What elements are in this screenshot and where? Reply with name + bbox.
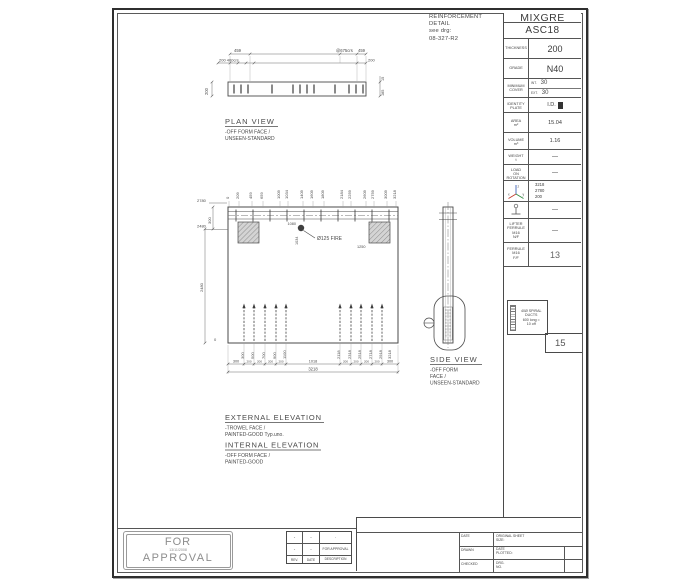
axis-x-letter: x <box>508 193 510 197</box>
asc-code: ASC18 <box>504 23 581 38</box>
bar-dim: 1100 <box>282 350 287 359</box>
tb-divider <box>459 532 460 572</box>
seg-dim: 200 <box>278 360 283 364</box>
volume-value: 1.16 <box>529 133 581 149</box>
identity-value: I.D. <box>547 102 556 108</box>
fire-leader <box>304 231 316 239</box>
left-dim-2480b: 2480 <box>199 282 204 292</box>
info-row-load: LOAD ON ROTATION — <box>504 165 581 181</box>
note-line2: DETAIL <box>429 21 482 28</box>
mix-title: MIXGRE <box>504 13 581 22</box>
bar-dim-end: 3218 <box>387 349 392 359</box>
duct-note-line4: 10 off <box>516 322 548 326</box>
drawing-area: 459 @675crs 459 200 400crs 200 200 15 18… <box>0 0 700 584</box>
side-view: SIDE VIEW -OFF FORM FACE / UNSEEN-STANDA… <box>424 202 482 387</box>
seg-dim: 300 <box>233 360 239 364</box>
drawing-sheet: 459 @675crs 459 200 400crs 200 200 15 18… <box>0 0 700 584</box>
revision-header-row: REV. DATE DESCRIPTION <box>287 556 351 563</box>
rev-cell: - <box>287 532 303 543</box>
note-line3: see drg: <box>429 28 482 35</box>
plan-view-title: PLAN VIEW <box>225 117 275 126</box>
cover-ext-label: EXT. <box>531 91 538 95</box>
bar-dim: 2718 <box>368 349 373 359</box>
axis-y-letter: y <box>523 193 525 197</box>
info-row-grade: GRADE N40 <box>504 59 581 79</box>
plan-view: 459 @675crs 459 200 400crs 200 200 15 18… <box>204 48 385 142</box>
ferrule-ff-value: 13 <box>529 243 581 266</box>
identity-plate-icon <box>558 102 563 109</box>
seg-dim: 200 <box>343 360 348 364</box>
seg-dim: 200 <box>374 360 379 364</box>
info-row-mix: MIXGRE <box>504 13 581 23</box>
revision-table: - - - - - FOR APPROVAL REV. DATE DESCRIP… <box>286 531 352 564</box>
side-view-title: SIDE VIEW <box>430 355 478 364</box>
identity-label-2: PLATE <box>504 106 528 110</box>
rev-cell: - <box>320 532 351 543</box>
top-dim: 1034 <box>284 189 289 199</box>
plan-sub1: -OFF FORM FACE / <box>225 130 271 136</box>
thickness-value: 200 <box>529 39 581 58</box>
top-dim: 1009 <box>276 189 281 199</box>
rev-header: DATE <box>303 556 320 563</box>
info-row-axis: z x y 3218 2780 200 <box>504 181 581 202</box>
bar-dim: 2518 <box>357 349 362 359</box>
cover-label-2: COVER <box>504 88 528 92</box>
side-sub1: -OFF FORM <box>430 368 458 374</box>
rev-header: DESCRIPTION <box>320 556 351 563</box>
lifter-icon <box>507 203 525 218</box>
plan-dim-15: 15 <box>381 77 385 81</box>
info-row-ferrule-ff: FERRULE M16 F/F 13 <box>504 243 581 267</box>
external-elevation-title: EXTERNAL ELEVATION <box>225 413 322 422</box>
duct-count-value: 15 <box>555 338 566 349</box>
dowel-arrows <box>242 304 383 309</box>
tb-date-label: DATE <box>461 534 470 538</box>
plan-extension-lines <box>230 56 366 81</box>
elevation-view: Ø125 FIRE 1080 1034 1250 0 209 459 659 1… <box>197 189 399 374</box>
plan-dim-459-right: 459 <box>358 48 366 53</box>
info-table: MIXGRE ASC18 THICKNESS 200 GRADE N40 MIN… <box>503 13 581 517</box>
seg-dim: 200 <box>257 360 262 364</box>
fire-dim-x: 1080 <box>288 222 296 226</box>
spiral-duct-note: 40Ø SPIRAL DUCTS 600 long = 10 off <box>507 300 548 335</box>
fire-dim-y: 1034 <box>295 237 299 245</box>
bar-dim: 900 <box>272 352 277 359</box>
seg-dim: 200 <box>246 360 251 364</box>
ferrule-nf-value: — <box>529 219 581 242</box>
top-dim: 209 <box>235 192 240 199</box>
top-dim: 2184 <box>339 189 344 199</box>
bar-dim: 300 <box>240 352 245 359</box>
note-line4: 08-327-R2 <box>429 36 482 43</box>
axis-triad-icon: z x y <box>505 182 527 200</box>
duct-count-cell: 15 <box>545 333 582 353</box>
blockout-left <box>238 222 259 243</box>
rev-cell: FOR APPROVAL <box>320 544 351 555</box>
info-row-lifter: — <box>504 202 581 219</box>
info-row-weight: WEIGHT t — <box>504 150 581 165</box>
area-value: 15.04 <box>529 113 581 132</box>
cover-int-value: 30 <box>541 80 548 86</box>
tb-drawn-label: DRAWN <box>461 548 474 552</box>
top-dim: 3009 <box>383 189 388 199</box>
approval-stamp: FOR 13/11/2008 APPROVAL <box>123 531 233 570</box>
plan-dim-200-side: 200 <box>204 87 209 95</box>
fire-penetration <box>298 225 304 231</box>
top-dim: 2759 <box>370 189 375 199</box>
blockout-right <box>369 222 390 243</box>
seg-dim: 200 <box>353 360 358 364</box>
thickness-label: THICKNESS <box>504 39 529 58</box>
top-dim: 3218 <box>392 189 397 199</box>
left-dim-2480a: 2480 <box>197 224 207 229</box>
volume-label-2: m³ <box>504 142 528 146</box>
revision-row: - - - <box>287 532 351 544</box>
note-line1: REINFORCEMENT <box>429 14 482 21</box>
load-label-3: ROTATION <box>504 176 528 180</box>
bar-dim: 2318 <box>347 349 352 359</box>
grade-label: GRADE <box>504 59 529 78</box>
top-dim: 1409 <box>299 189 304 199</box>
top-dim: 2259 <box>347 189 352 199</box>
total-dim: 3218 <box>308 367 318 372</box>
axis-z-letter: z <box>518 185 520 189</box>
plan-sub2: UNSEEN-STANDARD <box>225 136 275 142</box>
rev-cell: - <box>303 544 320 555</box>
weight-label-2: t <box>504 158 528 162</box>
info-row-identity: IDENTITY PLATE I.D. <box>504 98 581 113</box>
seg-dim: 1018 <box>309 360 317 364</box>
rev-cell: - <box>303 532 320 543</box>
bottom-strip-line <box>117 528 356 529</box>
revision-row: - - FOR APPROVAL <box>287 544 351 556</box>
plan-dim-200-400crs: 200 400crs <box>219 58 239 63</box>
plan-dim-200-right: 200 <box>368 58 375 63</box>
info-row-volume: VOLUME m³ 1.16 <box>504 133 581 150</box>
external-sub1: -TROWEL FACE / <box>225 426 266 432</box>
fire-note: Ø125 FIRE <box>317 236 343 242</box>
top-dim: 1809 <box>320 189 325 199</box>
tb-drg-label-2: NO. <box>496 565 504 569</box>
ferrule-ff-label-3: F/F <box>504 256 528 260</box>
plan-dim-459-left: 459 <box>234 48 242 53</box>
grade-value: N40 <box>529 59 581 78</box>
rev-header: REV. <box>287 556 303 563</box>
dim-1250: 1250 <box>357 245 365 249</box>
tb-divider <box>357 532 582 533</box>
cover-int-label: INT. <box>531 81 537 85</box>
top-dim: 1609 <box>309 189 314 199</box>
cover-ext-value: 30 <box>542 90 549 96</box>
top-dim: 659 <box>259 192 264 199</box>
seg-dim: 200 <box>268 360 273 364</box>
lifter-value: — <box>529 202 581 218</box>
ferrule-nf-label-4: N/F <box>504 235 528 239</box>
top-dim: 459 <box>248 192 253 199</box>
bar-dim: 2118 <box>336 350 341 359</box>
stamp-line2: APPROVAL <box>143 553 214 564</box>
top-dim: 0 <box>225 196 230 199</box>
rev-cell: - <box>287 544 303 555</box>
axis-z-value: 200 <box>535 194 542 200</box>
seg-dim: 200 <box>364 360 369 364</box>
dowel-bars <box>244 308 382 341</box>
bar-dim: 500 <box>250 352 255 359</box>
info-row-asc: ASC18 <box>504 23 581 39</box>
tb-divider <box>564 546 565 573</box>
internal-sub1: -OFF FORM FACE / <box>225 453 271 459</box>
bar-dim: 700 <box>261 352 266 359</box>
reinforcement-note: REINFORCEMENT DETAIL see drg: 08-327-R2 <box>429 14 482 43</box>
internal-elevation-title: INTERNAL ELEVATION <box>225 441 319 450</box>
tb-divider <box>493 532 494 572</box>
side-sub3: UNSEEN-STANDARD <box>430 381 480 387</box>
info-row-cover: MINIMUM COVER INT. 30 EXT. 30 <box>504 79 581 98</box>
area-label-2: m² <box>504 123 528 127</box>
info-row-area: AREA m² 15.04 <box>504 113 581 133</box>
left-dim-2780: 2780 <box>197 198 207 203</box>
internal-sub2: PAINTED-GOOD <box>225 460 264 466</box>
plan-panel-outline <box>228 82 366 96</box>
tb-sheet-size-label-2: SIZE: <box>496 538 524 542</box>
bar-dim: 2918 <box>378 349 383 359</box>
top-dim: 2609 <box>362 189 367 199</box>
left-dim-0: 0 <box>214 337 217 342</box>
title-block: DATE DRAWN CHECKED ORIGINAL SHEET SIZE: … <box>356 517 581 571</box>
info-row-thickness: THICKNESS 200 <box>504 39 581 59</box>
load-value: — <box>529 165 581 180</box>
info-row-ferrule-nf: LIFTER FERRULE M16 N/F — <box>504 219 581 243</box>
tb-plotted-label-2: PLOTTED: <box>496 551 513 555</box>
external-sub2: PAINTED-GOOD Typ.uno. <box>225 432 284 438</box>
elevation-notes: EXTERNAL ELEVATION -TROWEL FACE / PAINTE… <box>225 413 324 466</box>
plan-dim-675crs: @675crs <box>336 48 353 53</box>
seg-dim: 300 <box>387 360 393 364</box>
tb-checked-label: CHECKED <box>461 562 478 566</box>
side-sub2: FACE / <box>430 374 446 380</box>
stamp-line1: FOR <box>165 537 191 548</box>
detail-bubble <box>434 296 465 350</box>
plan-dim-185: 185 <box>381 90 385 96</box>
left-dim-300: 300 <box>207 217 212 224</box>
weight-value: — <box>529 150 581 164</box>
